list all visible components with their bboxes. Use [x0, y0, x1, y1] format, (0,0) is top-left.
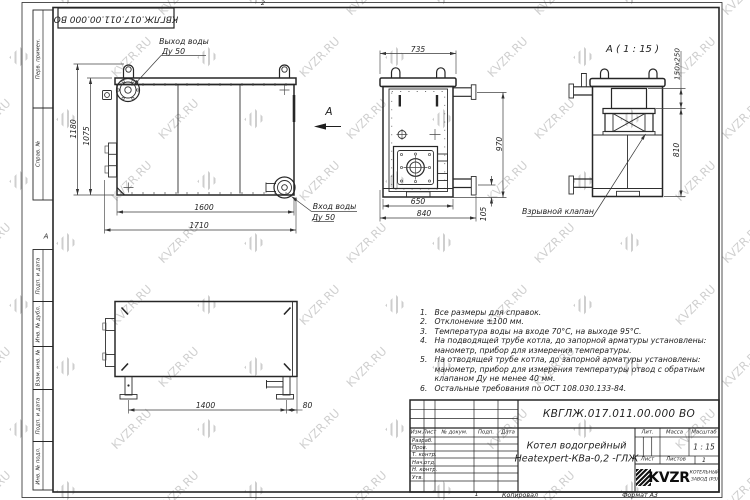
zone-marker-left: А [44, 234, 49, 241]
note-text: Температура воды на входе 70°С, на выход… [435, 327, 717, 336]
margin-label-sprav-no: Справ. № [36, 141, 41, 167]
logo-subtitle-2: ЗАВОД (РЗ) [691, 478, 718, 483]
note-number: 1. [420, 308, 435, 317]
note-item: 1. Все размеры для справок. [420, 308, 716, 317]
zone-marker-bottom: 1 [475, 492, 479, 498]
dim-1075: 1075 [83, 126, 91, 145]
note-item: 5. На отводящей трубе котла, до запорной… [420, 355, 716, 383]
detail-view-a [527, 51, 686, 217]
detail-view-title: А ( 1 : 15 ) [606, 45, 659, 55]
technical-notes: 1. Все размеры для справок. 2. Отклонени… [420, 308, 716, 393]
callout-explosion-valve: Взрывной клапан [522, 208, 594, 216]
zone-marker-top: 2 [261, 0, 265, 6]
note-number: 2. [420, 317, 435, 326]
note-text: Остальные требования по ОСТ 108.030.133-… [435, 384, 717, 393]
note-text: Все размеры для справок. [435, 308, 717, 317]
callout-water-outlet: Выход воды [159, 38, 209, 46]
margin-label-vzam-inv: Взам. инв. № [36, 350, 41, 387]
row-razrab: Разраб. [412, 438, 433, 444]
margin-label-inv-podl: Инв. № подл. [36, 447, 41, 484]
kvzr-logo-text: KVZR [648, 471, 689, 485]
note-text: На подводящей трубе котла, до запорной а… [435, 336, 717, 355]
listov-value: 1 [702, 457, 706, 464]
dim-840: 840 [417, 210, 432, 218]
designation-top-reversed: КВГЛЖ.017.011.00.000 ВО [54, 14, 179, 23]
note-item: 3. Температура воды на входе 70°С, на вы… [420, 327, 716, 336]
col-doc: № докум. [441, 430, 467, 435]
note-number: 6. [420, 384, 435, 393]
col-data: Дата [501, 430, 515, 435]
sheet-frame [22, 3, 722, 498]
product-name-line1: Котел водогрейный [527, 441, 627, 451]
dim-970: 970 [496, 137, 504, 152]
margin-label-perv-primen: Перв. примен. [36, 39, 41, 79]
note-number: 4. [420, 336, 435, 355]
row-nach-otd: Нач.отд. [412, 460, 436, 466]
view-direction-label: А [325, 107, 332, 118]
callout-water-inlet: Вход воды [313, 203, 357, 211]
row-t-kontr: Т. контр. [412, 452, 437, 458]
drawing-linework: .thick{stroke:#262626;stroke-width:1.5;f… [0, 0, 750, 500]
dim-810: 810 [673, 143, 681, 158]
note-text: Отклонение ±100 мм. [435, 317, 717, 326]
margin-label-inv-dubl: Инв. № дубл. [36, 306, 41, 343]
col-izm: Изм. [411, 430, 423, 435]
label-masshtab: Масштаб [691, 430, 716, 435]
col-podp: Подп. [478, 430, 494, 435]
dim-105: 105 [480, 206, 488, 221]
product-name-line2: Heatexpert-КВа-0,2 -ГЛЖ [515, 454, 639, 464]
title-block-designation: КВГЛЖ.017.011.00.000 ВО [543, 409, 695, 420]
side-view [380, 51, 507, 222]
dim-1400: 1400 [196, 402, 215, 410]
row-utv: Утв. [412, 475, 423, 481]
note-number: 5. [420, 355, 435, 383]
dim-735: 735 [411, 46, 426, 54]
bottom-view [103, 302, 303, 414]
dim-1600: 1600 [194, 204, 213, 212]
row-prov: Пров. [412, 445, 427, 451]
margin-label-podp-data-1: Подп. и дата [36, 257, 41, 294]
dim-1710: 1710 [189, 222, 208, 230]
label-lit: Лит. [641, 430, 653, 435]
note-item: 6. Остальные требования по ОСТ 108.030.1… [420, 384, 716, 393]
margin-label-podp-data-2: Подп. и дата [36, 398, 41, 435]
dim-80: 80 [303, 402, 313, 410]
callout-water-outlet-dn: Ду 50 [162, 48, 185, 56]
drawing-sheet: KVZR.RUKVZR.RUKVZR.RUKVZR.RUKVZR.RUKVZR.… [0, 0, 750, 500]
dim-1180: 1180 [70, 119, 78, 138]
format-label: Формат А3 [622, 492, 658, 498]
note-number: 3. [420, 327, 435, 336]
label-listov: Листов [666, 457, 686, 462]
scale-value: 1 : 15 [693, 443, 715, 451]
dim-150x250: 150x250 [673, 48, 680, 80]
callout-water-inlet-dn: Ду 50 [312, 214, 335, 222]
row-n-kontr: Н. контр. [412, 467, 437, 473]
label-list: Лист [641, 457, 654, 462]
dim-650: 650 [411, 198, 426, 206]
note-item: 2. Отклонение ±100 мм. [420, 317, 716, 326]
note-text: На отводящей трубе котла, до запорной ар… [435, 355, 717, 383]
col-list: Лист [423, 430, 436, 435]
note-item: 4. На подводящей трубе котла, до запорно… [420, 336, 716, 355]
label-massa: Масса [666, 430, 683, 435]
kopiroval-label: Копировал [502, 492, 538, 498]
logo-subtitle-1: КОТЕЛЬНЫЙ [690, 471, 720, 476]
